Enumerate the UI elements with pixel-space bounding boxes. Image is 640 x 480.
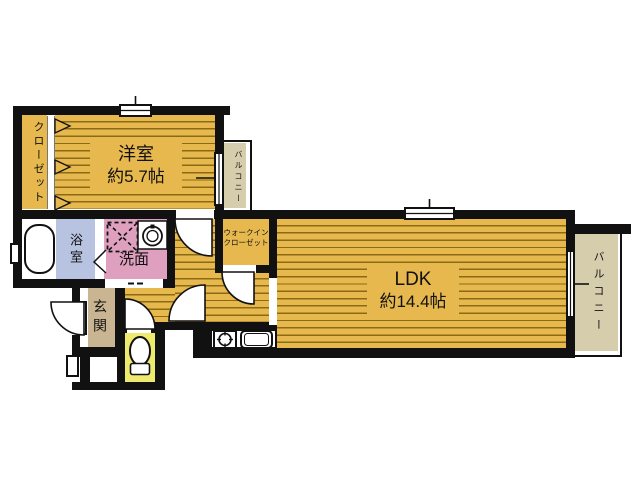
washroom-label: 洗面 xyxy=(106,252,162,269)
wic-label-line1: ウォークイン xyxy=(221,229,271,237)
balcony-top-label: バルコニー xyxy=(226,147,244,207)
hall-door-arc xyxy=(169,285,205,321)
entrance-label: 玄関 xyxy=(92,294,110,342)
ldk-name: LDK xyxy=(395,270,432,291)
bath-label: 浴室 xyxy=(65,227,85,273)
slide-chevron-icon xyxy=(55,196,70,210)
fixtures-layer xyxy=(0,0,640,480)
closet-label: クローゼット xyxy=(24,118,46,208)
toilet-icon xyxy=(130,337,150,365)
slide-chevron-icon xyxy=(55,119,70,133)
wic-label-line2: クローゼット xyxy=(221,239,271,247)
bath-bifold-door-icon xyxy=(94,250,106,273)
bathtub-icon xyxy=(25,225,54,273)
washer-pan-icon xyxy=(108,223,138,252)
wic-door-arc xyxy=(222,272,254,304)
floor-plan: 洋室 約5.7帖 クローゼット バルコニー 浴室 洗面 ウォークイン クローゼッ… xyxy=(0,0,640,480)
bedroom-size: 約5.7帖 xyxy=(107,168,165,187)
toilet-door-arc xyxy=(125,299,155,329)
ldk-size: 約14.4帖 xyxy=(379,293,446,312)
bedroom-label: 洋室 約5.7帖 xyxy=(90,138,182,194)
bedroom-name: 洋室 xyxy=(118,145,154,165)
balcony-right-label: バルコニー xyxy=(586,247,606,339)
slide-chevron-icon xyxy=(55,160,70,174)
ldk-label: LDK 約14.4帖 xyxy=(367,263,459,318)
bedroom-door-arc xyxy=(175,219,212,256)
entrance-door-arc xyxy=(51,302,84,335)
walk-in-closet-label: ウォークイン クローゼット xyxy=(221,229,271,248)
